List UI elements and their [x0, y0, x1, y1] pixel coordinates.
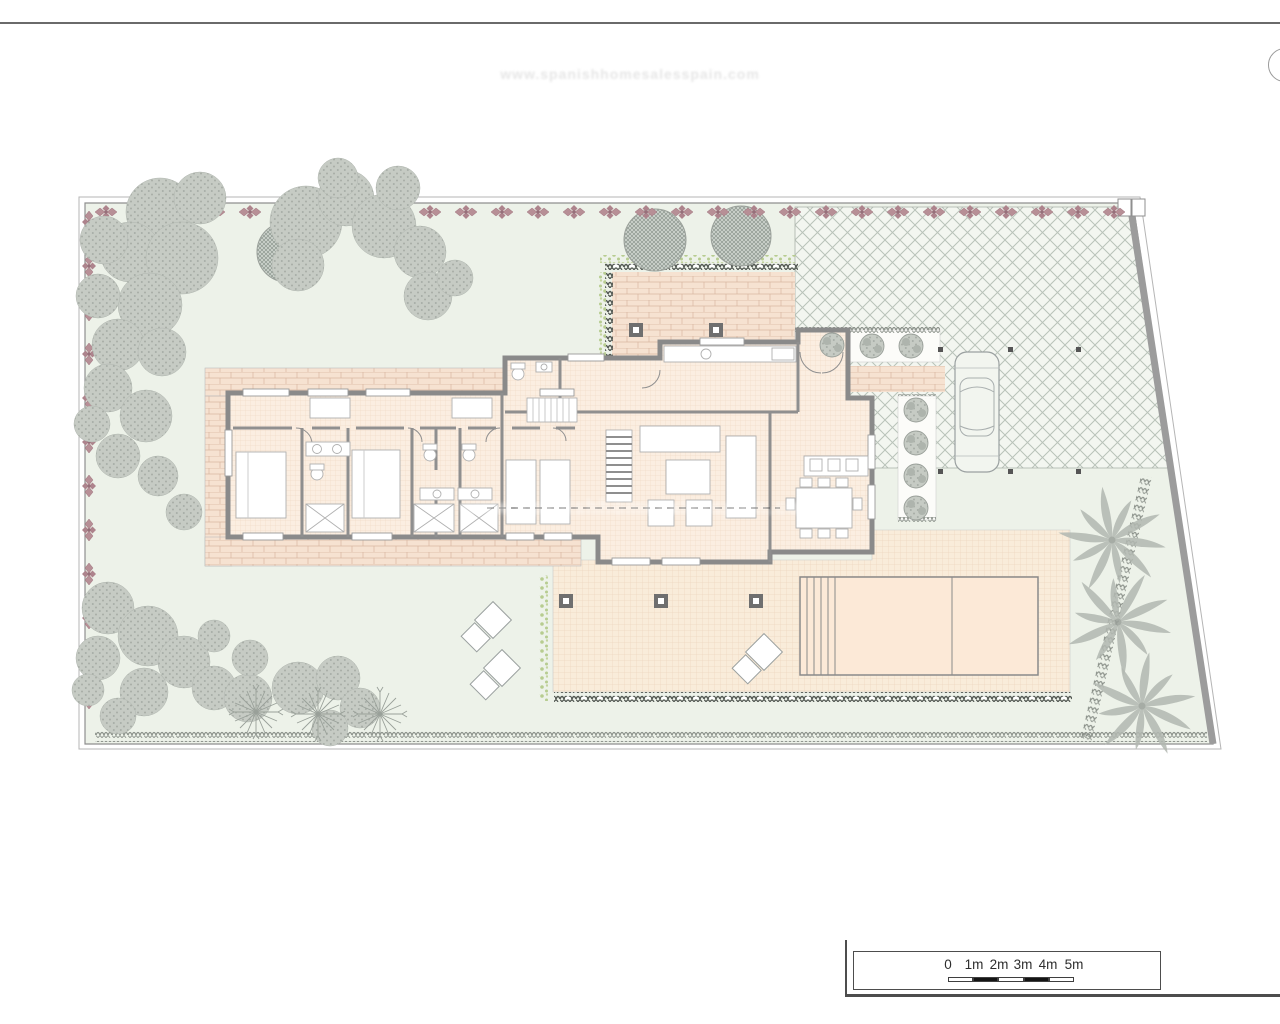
swimming-pool [800, 577, 1038, 675]
scale-label-3m: 3m [1014, 957, 1033, 972]
scale-label-2m: 2m [990, 957, 1009, 972]
gate-post [1132, 199, 1145, 216]
terrace-post [654, 594, 668, 608]
bush [904, 431, 928, 455]
courtyard-hedge-left [605, 263, 613, 371]
bush [904, 496, 928, 520]
bush [820, 333, 844, 357]
title-block-vertical-line [845, 940, 847, 995]
scale-label-1m: 1m [965, 957, 984, 972]
courtyard-hedge-top [606, 263, 798, 271]
terrace-hedge-south [554, 692, 1072, 703]
courtyard-post [629, 323, 643, 337]
bush [904, 398, 928, 422]
bush [899, 334, 923, 358]
green-border-terrace-west [539, 575, 548, 701]
floor-plan-page: www.spanishhomesalesspain.com www.spanis… [0, 0, 1280, 1024]
flower-border-top [95, 205, 1125, 219]
terrace-post [559, 594, 573, 608]
scale-bar: 0 1m 2m 3m 4m 5m [853, 951, 1161, 990]
courtyard-post [709, 323, 723, 337]
terrace-post [749, 594, 763, 608]
site-plan [0, 0, 1280, 1024]
hedge-bottom [95, 731, 1207, 742]
title-block-horizontal-line [845, 994, 1280, 997]
scale-label-0: 0 [944, 957, 952, 972]
bush [904, 464, 928, 488]
driveway-path [845, 366, 945, 392]
car [955, 352, 999, 472]
scale-strip [948, 977, 1074, 982]
scale-label-4m: 4m [1039, 957, 1058, 972]
scale-label-5m: 5m [1065, 957, 1084, 972]
bush [860, 334, 884, 358]
terrace-south [205, 537, 581, 566]
round-tree [624, 209, 686, 271]
